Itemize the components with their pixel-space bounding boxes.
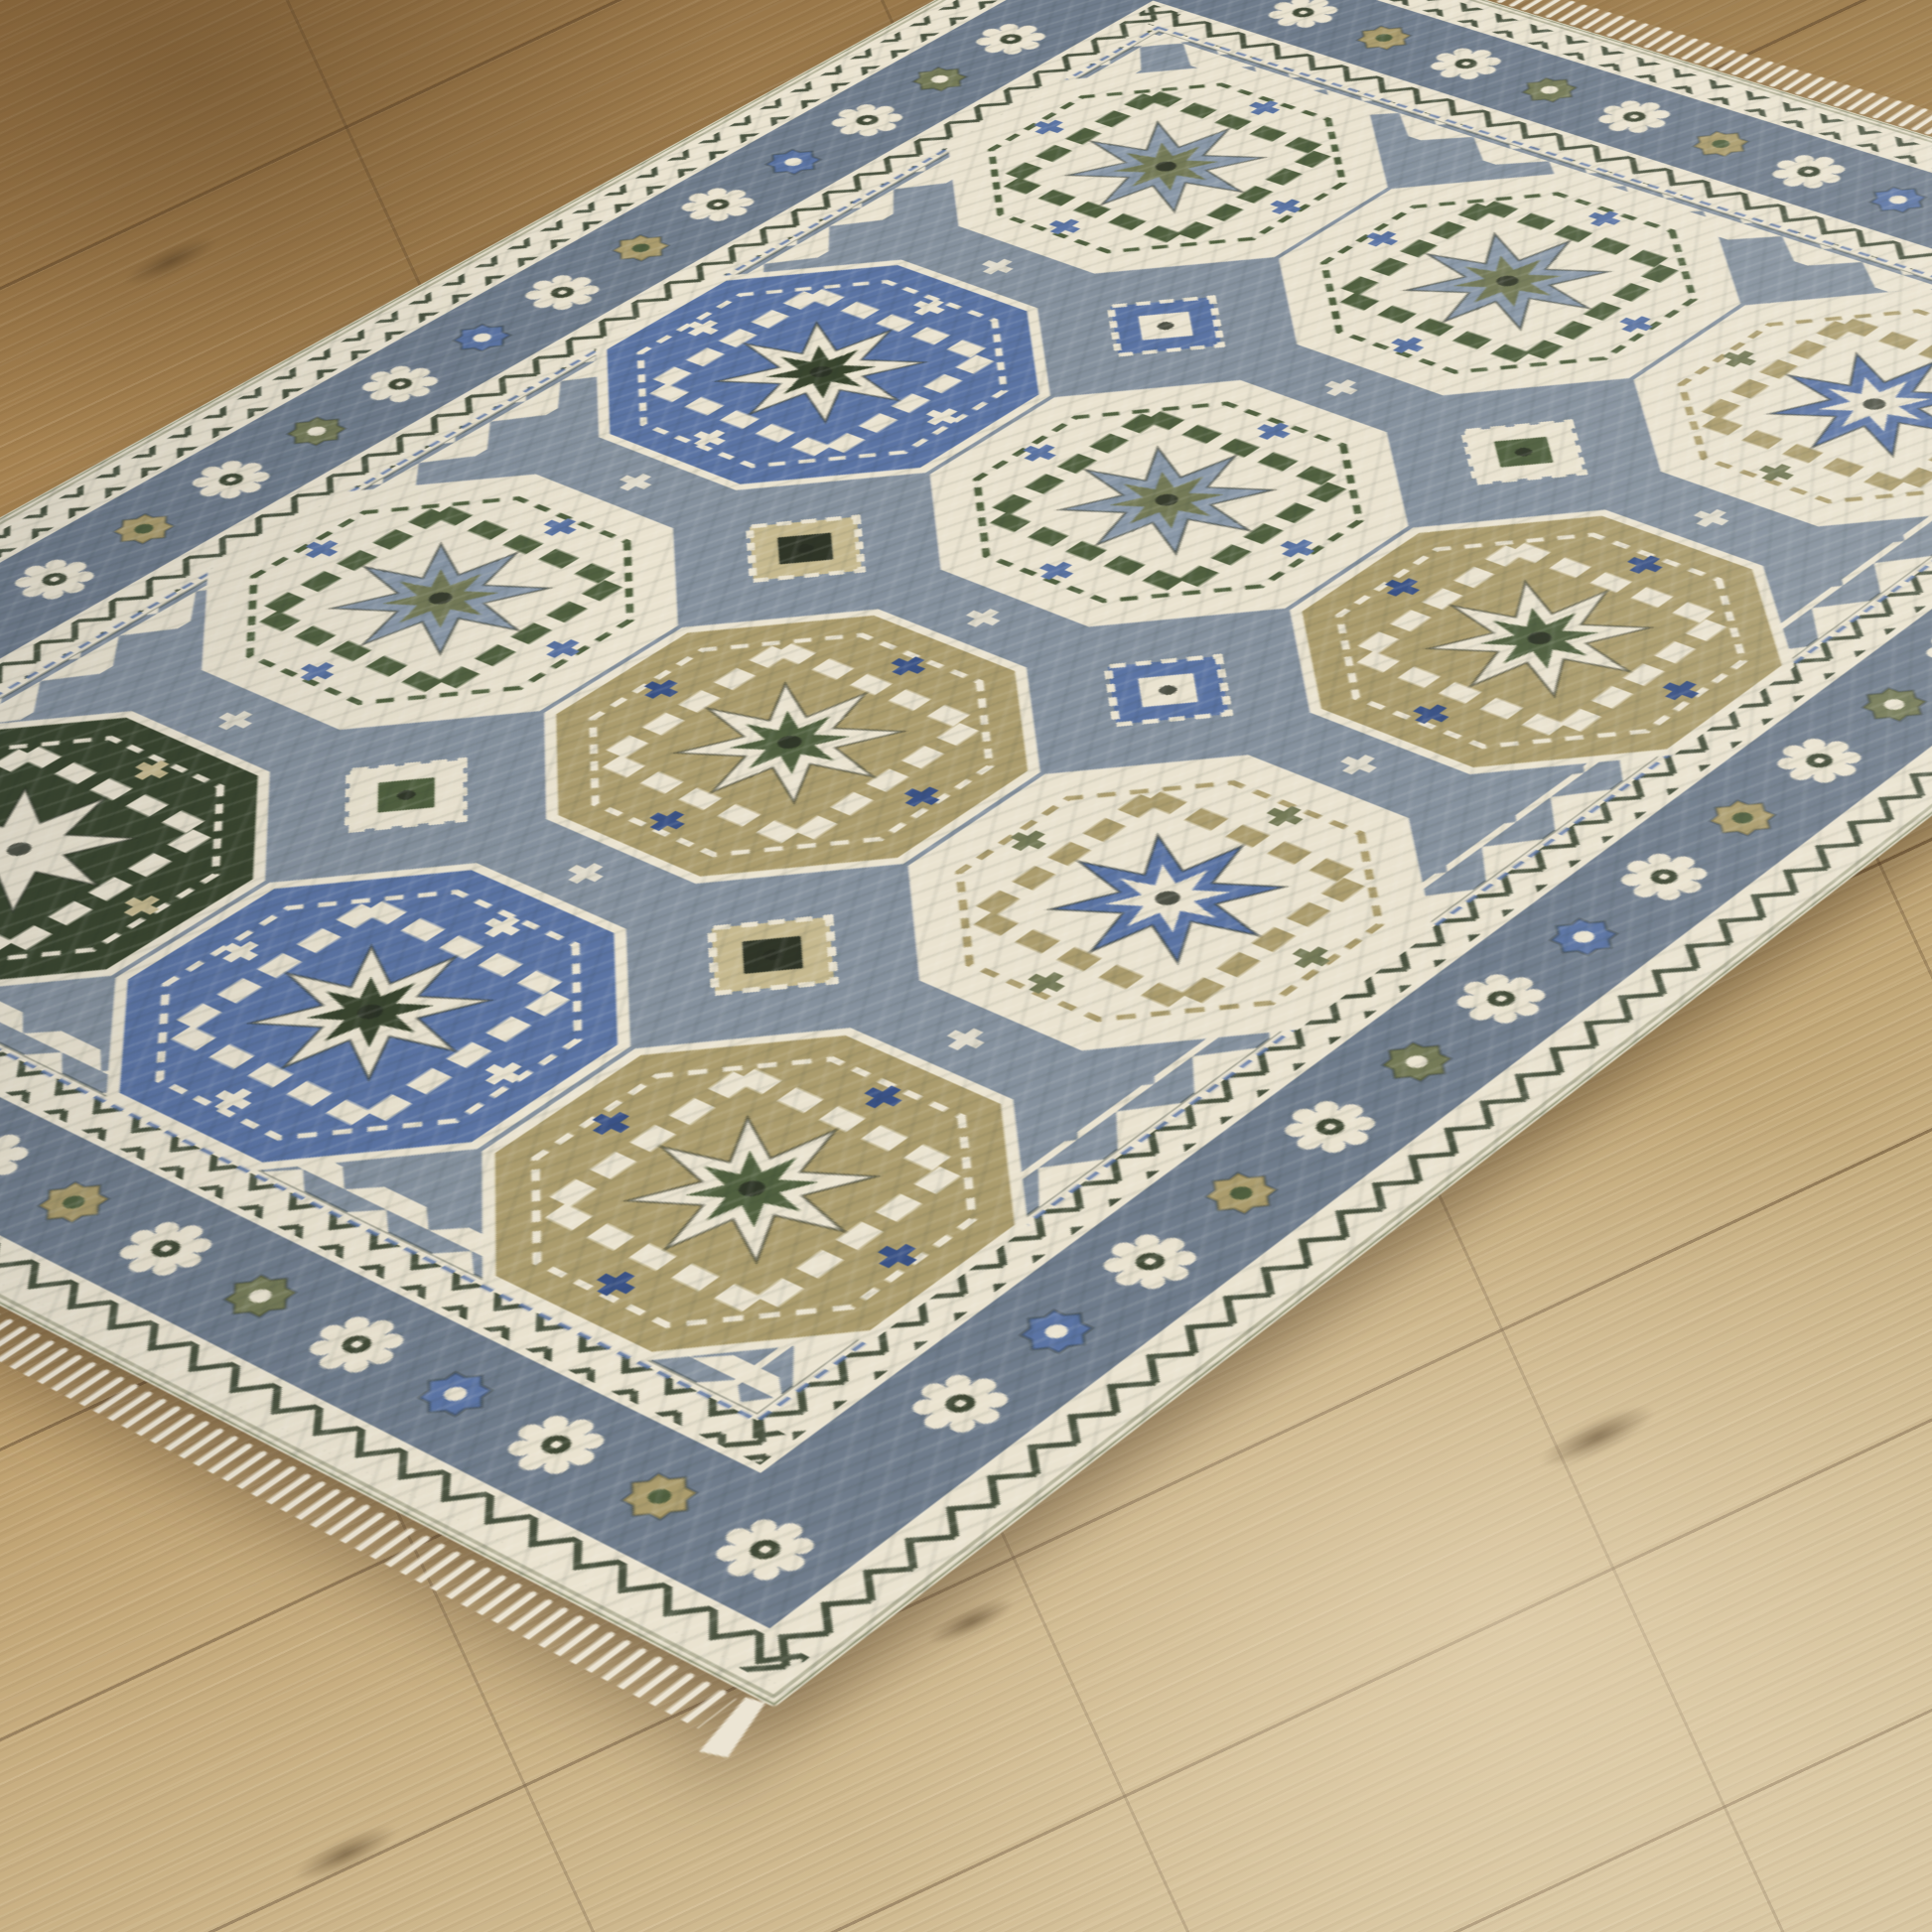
wood-knot	[1533, 1395, 1662, 1479]
wood-knot	[922, 1589, 1020, 1653]
wood-knot	[287, 1816, 404, 1891]
scene	[0, 0, 1932, 1932]
wood-knot	[118, 227, 222, 295]
